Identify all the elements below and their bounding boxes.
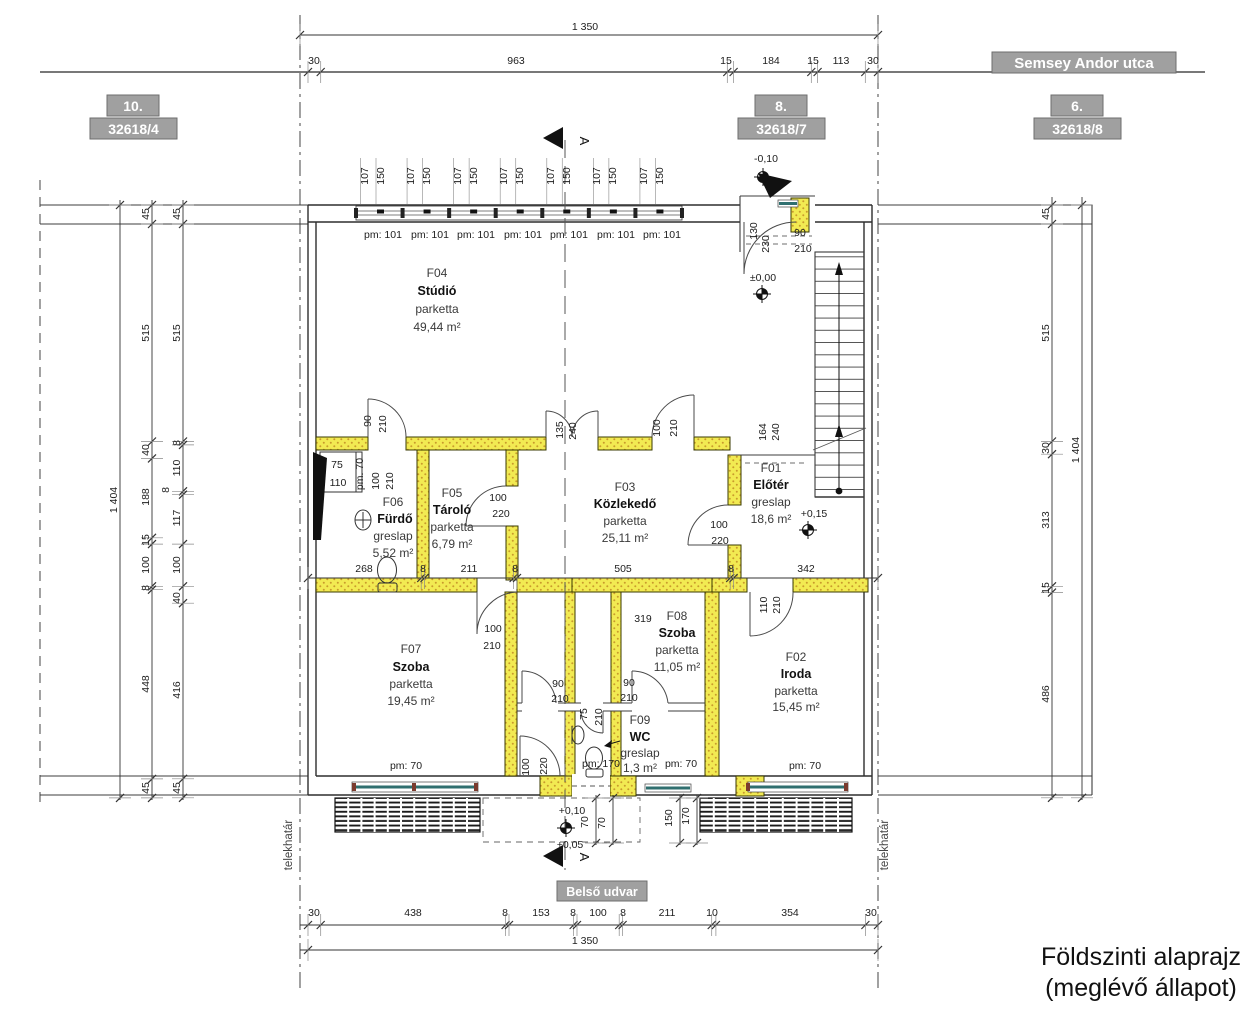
dim-label: 210 — [377, 415, 389, 433]
dim-label: 40 — [140, 444, 152, 456]
svg-text:F03: F03 — [615, 480, 636, 494]
dimension-labels: 1 35030963151841511330107150107150107150… — [108, 21, 1082, 947]
dim-label: 45 — [1040, 208, 1052, 220]
dim-label: 75 — [578, 708, 590, 720]
dim-label: 210 — [593, 708, 605, 726]
svg-text:F06: F06 — [383, 495, 404, 509]
svg-text:parketta: parketta — [415, 302, 459, 316]
dim-label: 210 — [771, 596, 783, 614]
section-arrow-top — [543, 127, 563, 149]
dim-label: 210 — [384, 472, 396, 490]
dim-label: 107 — [498, 167, 510, 185]
dim-label: 107 — [359, 167, 371, 185]
dim-label: 100 — [489, 492, 507, 504]
room-F03: F03 Közlekedő parketta 25,11 m² — [594, 480, 657, 545]
dim-label: 107 — [452, 167, 464, 185]
parcel-6-number: 6. — [1071, 98, 1083, 114]
room-F07: F07 Szoba parketta 19,45 m² — [387, 642, 434, 708]
dim-chain — [1041, 197, 1063, 802]
dim-label: 220 — [711, 535, 729, 547]
svg-text:F04: F04 — [427, 266, 448, 280]
dim-label: 90 — [794, 227, 806, 239]
neighbor-buildings — [40, 205, 1092, 795]
dim-label: 110 — [330, 477, 347, 489]
dim-label: 210 — [483, 640, 501, 652]
dim-label: 135 — [554, 421, 566, 439]
bathroom-sink — [355, 510, 371, 530]
dim-label: 354 — [781, 907, 799, 919]
dim-label: 515 — [171, 324, 183, 342]
dim-label: 113 — [833, 55, 850, 67]
dim-label: 110 — [758, 596, 770, 613]
dim-label: 30 — [865, 907, 877, 919]
dim-label: 486 — [1040, 685, 1052, 703]
dim-label: 40 — [171, 592, 183, 604]
boundary-label-left: telekhatár — [283, 820, 295, 871]
dim-label: 8 — [728, 563, 734, 575]
dim-label: 211 — [659, 907, 676, 919]
dim-label: 15 — [140, 534, 152, 546]
dim-label: 963 — [507, 55, 525, 67]
dim-label: 8 — [620, 907, 626, 919]
svg-text:parketta: parketta — [774, 684, 818, 698]
dim-label: 30 — [867, 55, 879, 67]
dim-label: 416 — [171, 681, 183, 699]
dim-label: ±0,00 — [750, 272, 776, 284]
dim-label: 70 — [596, 817, 608, 829]
staircase — [813, 252, 866, 497]
dim-label: 45 — [171, 782, 183, 794]
dim-label: 8 — [502, 907, 508, 919]
dim-label: 70 — [579, 816, 591, 828]
dim-label: 8 — [160, 487, 172, 493]
dim-label: 100 — [171, 556, 183, 574]
dim-label: 319 — [634, 613, 652, 625]
dim-label: 438 — [404, 907, 422, 919]
dim-chain — [1071, 197, 1093, 802]
svg-text:Tároló: Tároló — [433, 503, 472, 517]
parcel-6-lot: 32618/8 — [1052, 121, 1103, 137]
dim-label: pm: 101 — [597, 229, 635, 241]
svg-text:Előtér: Előtér — [753, 478, 789, 492]
svg-text:Iroda: Iroda — [781, 667, 813, 681]
dim-label: 107 — [591, 167, 603, 185]
svg-text:greslap: greslap — [373, 529, 413, 543]
dim-label: 505 — [614, 563, 632, 575]
dim-label: 268 — [355, 563, 373, 575]
drawing-title-line2: (meglévő állapot) — [1045, 974, 1237, 1002]
section-letter-top: A — [577, 137, 592, 146]
dim-label: pm: 101 — [504, 229, 542, 241]
dim-label: 220 — [492, 508, 510, 520]
dim-label: 150 — [375, 167, 387, 185]
dim-label: 15 — [807, 55, 819, 67]
dim-label: 515 — [140, 324, 152, 342]
dim-label: 515 — [1040, 324, 1052, 342]
svg-text:F02: F02 — [786, 650, 807, 664]
parcel-10-number: 10. — [123, 98, 142, 114]
svg-text:WC: WC — [630, 730, 651, 744]
dim-label: 150 — [654, 167, 666, 185]
dim-label: 1 404 — [1070, 437, 1082, 463]
svg-text:49,44 m²: 49,44 m² — [413, 320, 460, 334]
dim-chain — [172, 200, 194, 802]
dim-label: 8 — [140, 585, 152, 591]
dim-label: 30 — [308, 907, 320, 919]
room-F09: F09 WC greslap 1,3 m² — [620, 713, 660, 775]
dim-label: 45 — [140, 782, 152, 794]
dim-label: 45 — [140, 208, 152, 220]
svg-text:6,79 m²: 6,79 m² — [432, 537, 473, 551]
room-F08: F08 Szoba parketta 11,05 m² — [654, 609, 700, 674]
dim-label: 8 — [171, 440, 183, 446]
dim-label: pm: 101 — [643, 229, 681, 241]
dim-label: 170 — [680, 807, 692, 825]
dim-label: 1 350 — [572, 21, 598, 33]
dim-label: 15 — [1040, 582, 1052, 594]
dim-label: 107 — [638, 167, 650, 185]
dim-label: 90 — [623, 677, 635, 689]
svg-text:25,11 m²: 25,11 m² — [602, 531, 648, 545]
dim-label: 30 — [1040, 442, 1052, 454]
dim-label: 150 — [663, 809, 675, 827]
svg-text:F08: F08 — [667, 609, 688, 623]
dim-label: pm: 101 — [457, 229, 495, 241]
dim-label: -0,10 — [754, 153, 778, 165]
room-F04: F04 Stúdió parketta 49,44 m² — [413, 266, 460, 334]
dim-label: pm: 170 — [582, 758, 620, 770]
svg-text:18,6 m²: 18,6 m² — [751, 512, 792, 526]
svg-text:Fürdő: Fürdő — [377, 512, 413, 526]
dim-label: 30 — [308, 55, 320, 67]
svg-text:Stúdió: Stúdió — [418, 284, 457, 298]
dim-label: 184 — [762, 55, 780, 67]
parcel-8-number: 8. — [775, 98, 787, 114]
dim-label: 240 — [770, 423, 782, 441]
dim-label: 75 — [331, 459, 343, 471]
dim-label: 100 — [651, 419, 663, 437]
dim-label: pm. 70 — [354, 458, 366, 490]
dim-label: 8 — [420, 563, 426, 575]
dim-label: 107 — [545, 167, 557, 185]
dim-label: 220 — [538, 757, 550, 775]
dim-label: 150 — [421, 167, 433, 185]
dim-label: 8 — [512, 563, 518, 575]
svg-text:Szoba: Szoba — [659, 626, 697, 640]
svg-text:parketta: parketta — [655, 643, 699, 657]
dim-label: pm: 70 — [665, 758, 697, 770]
dim-label: pm: 101 — [364, 229, 402, 241]
dim-label: 45 — [171, 208, 183, 220]
dim-label: 8 — [570, 907, 576, 919]
svg-text:greslap: greslap — [620, 746, 660, 760]
dim-label: 211 — [461, 563, 478, 575]
dim-label: 117 — [171, 509, 183, 526]
svg-text:F01: F01 — [761, 461, 782, 475]
wc-partitions — [517, 703, 705, 711]
dim-label: 210 — [794, 243, 812, 255]
svg-text:greslap: greslap — [751, 495, 791, 509]
svg-text:Szoba: Szoba — [393, 660, 431, 674]
dim-label: 110 — [171, 459, 183, 476]
dim-label: 150 — [514, 167, 526, 185]
dim-label: 210 — [668, 419, 680, 437]
dim-label: +0,05 — [557, 839, 584, 851]
room-labels: F04 Stúdió parketta 49,44 m² F05 Tároló … — [373, 266, 820, 775]
courtyard-label: Belső udvar — [566, 885, 638, 899]
dim-label: 210 — [551, 693, 569, 705]
dim-label: 150 — [468, 167, 480, 185]
dim-label: 90 — [362, 415, 374, 427]
dim-label: 240 — [567, 422, 579, 440]
svg-text:parketta: parketta — [430, 520, 474, 534]
parcel-8-lot: 32618/7 — [756, 121, 807, 137]
street-label: Semsey Andor utca — [1014, 55, 1154, 72]
dim-label: 100 — [710, 519, 728, 531]
dim-label: +0,15 — [801, 508, 828, 520]
room-F06: F06 Fürdő greslap 5,52 m² — [373, 495, 414, 560]
room-F02: F02 Iroda parketta 15,45 m² — [772, 650, 819, 714]
dim-label: +0,10 — [559, 805, 586, 817]
dim-label: 150 — [607, 167, 619, 185]
dim-label: 164 — [757, 423, 769, 441]
svg-text:parketta: parketta — [389, 677, 433, 691]
dim-label: 1 350 — [572, 935, 598, 947]
dim-label: 342 — [797, 563, 815, 575]
dim-label: 100 — [370, 472, 382, 490]
room-F01: F01 Előtér greslap 18,6 m² — [751, 461, 792, 526]
dim-label: pm: 70 — [390, 760, 422, 772]
svg-text:1,3 m²: 1,3 m² — [623, 761, 657, 775]
svg-text:11,05 m²: 11,05 m² — [654, 660, 700, 674]
dim-label: 210 — [620, 692, 638, 704]
dim-label: 10 — [706, 907, 718, 919]
dim-label: 100 — [484, 623, 502, 635]
dim-label: 15 — [720, 55, 732, 67]
svg-text:5,52 m²: 5,52 m² — [373, 546, 414, 560]
dim-label: 153 — [532, 907, 550, 919]
parcel-10-lot: 32618/4 — [108, 121, 159, 137]
dim-label: 90 — [552, 678, 564, 690]
wall-flue — [313, 452, 327, 540]
dim-label: pm: 70 — [789, 760, 821, 772]
svg-text:19,45 m²: 19,45 m² — [387, 694, 434, 708]
dim-label: 100 — [520, 758, 532, 776]
svg-text:15,45 m²: 15,45 m² — [772, 700, 819, 714]
dim-label: 107 — [405, 167, 417, 185]
dim-label: 448 — [140, 675, 152, 693]
dim-label: 1 404 — [108, 487, 120, 513]
dim-label: 313 — [1040, 511, 1052, 529]
dim-label: 130 — [748, 222, 760, 240]
floor-plan-canvas: 1 35030963151841511330107150107150107150… — [0, 0, 1254, 1024]
section-letter-bottom: A — [577, 853, 592, 862]
dim-label: 150 — [561, 167, 573, 185]
annotations: Semsey Andor utca 10. 32618/4 8. 32618/7… — [90, 52, 1241, 1002]
dim-label: pm: 101 — [550, 229, 588, 241]
drawing-title-line1: Földszinti alaprajz — [1041, 943, 1241, 971]
boundary-label-right: telekhatár — [879, 820, 891, 871]
dim-label: pm: 101 — [411, 229, 449, 241]
svg-text:parketta: parketta — [603, 514, 647, 528]
svg-text:Közlekedő: Közlekedő — [594, 497, 657, 511]
dim-label: 100 — [589, 907, 607, 919]
dim-label: 188 — [140, 488, 152, 506]
svg-text:F07: F07 — [401, 642, 422, 656]
dim-label: 100 — [140, 556, 152, 574]
svg-text:F09: F09 — [630, 713, 651, 727]
room-F05: F05 Tároló parketta 6,79 m² — [430, 486, 474, 551]
dim-label: 230 — [760, 235, 772, 253]
light-well-gratings — [335, 798, 852, 832]
svg-text:F05: F05 — [442, 486, 463, 500]
